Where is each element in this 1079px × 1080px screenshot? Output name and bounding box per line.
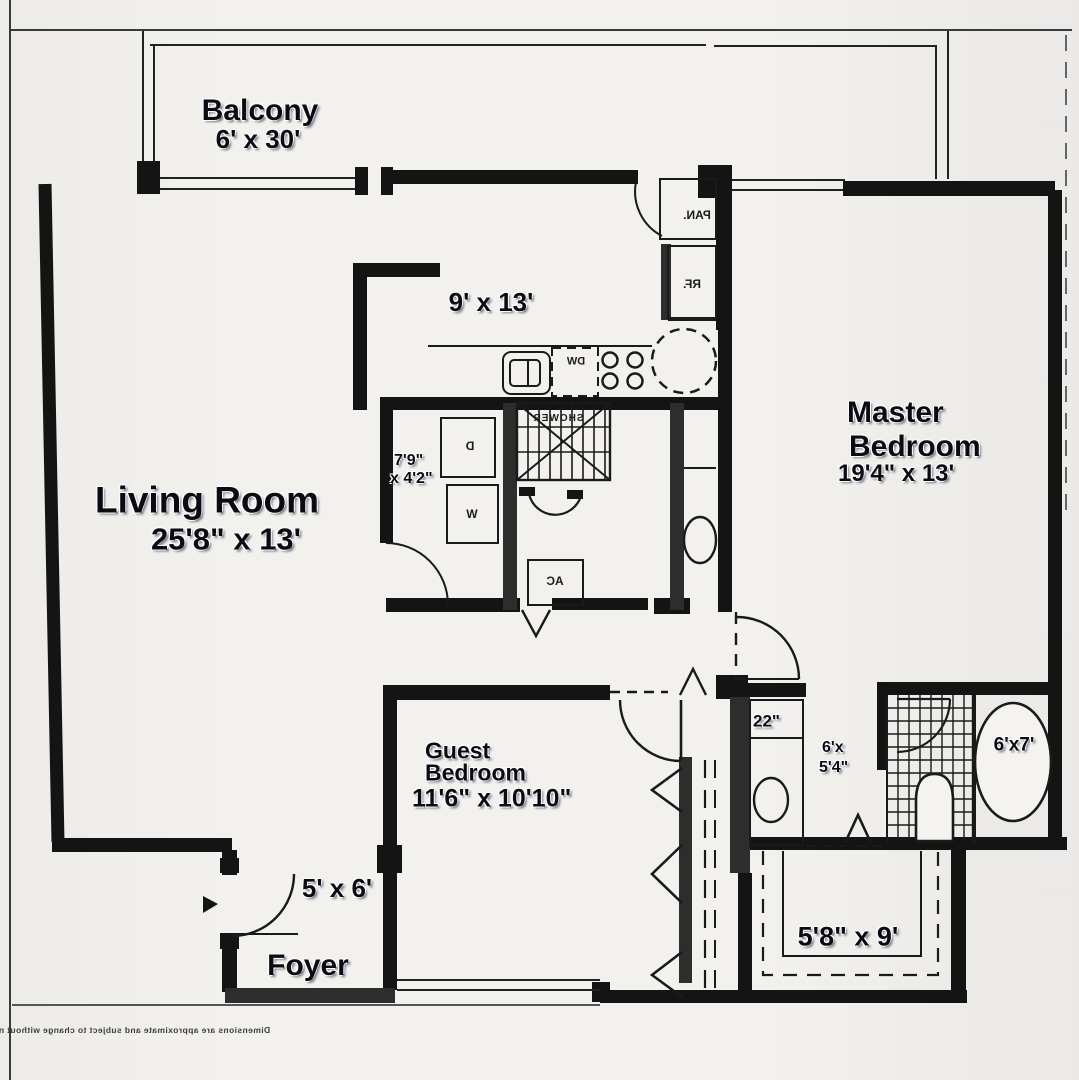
kitchen-dimensions: 9' x 13' [449,289,534,315]
toilet [916,774,953,841]
living-room-label: Living Room [95,482,319,519]
master-bedroom-label-line2: Bedroom [849,432,981,462]
entry-arrow-icon [203,896,218,913]
floorplan-page: Balcony 6' x 30' 9' x 13' Living Room 25… [0,0,1079,1080]
master-balcony-railing [714,31,948,179]
pantry-door-arc [635,182,662,236]
guest-window [397,980,600,990]
guest-door [610,669,706,761]
master-bedroom-label-line1: Master [847,398,944,428]
tub-room-dimensions: 6'x7' [994,736,1035,755]
bath-door [519,487,583,515]
shower-label: SHOWER [533,414,584,424]
guest-bedroom-label-line2: Bedroom [425,762,526,785]
tiled-shower [887,695,973,845]
refrigerator-label: RF. [683,278,701,290]
foyer-label: Foyer [267,951,349,981]
balcony-dimensions: 6' x 30' [216,126,301,152]
master-bedroom-dimensions: 19'4" x 13' [838,462,954,486]
bathtub [975,703,1051,821]
closet-sink [754,778,788,822]
master-door [736,612,799,680]
laundry-dimensions-line2: x 4'2" [390,471,433,487]
dryer-label: D [466,440,475,452]
tub-room [975,695,1051,845]
dining-table [652,329,716,393]
balcony-label: Balcony [202,96,319,126]
guest-bedroom-dimensions: 11'6" x 10'10" [412,787,571,812]
ac-label: AC [546,575,563,587]
foyer-dimensions: 5' x 6' [302,875,372,901]
dishwasher-label: DW [567,357,585,368]
walk-in-closet-dimensions: 5'8" x 9' [798,924,899,951]
balcony-door-jamb [355,167,368,195]
ac-door-mark [522,610,550,636]
walk-in-closet [763,851,938,975]
balcony-corner-post [137,161,160,194]
laundry-appliances [386,418,498,605]
stove-burners [603,353,643,389]
living-room-dimensions: 25'8" x 13' [151,524,301,555]
laundry-dimensions-line1: 7'9" [394,453,423,469]
kitchen-sink-basin [510,360,540,386]
wc [684,468,716,563]
entry-door [203,874,298,936]
pantry-label: PAN. [683,209,711,221]
living-west-wall [45,184,58,842]
toilet [684,517,716,563]
washer-label: W [466,508,477,520]
master-bath-dimensions-line2: 5'4" [819,760,848,776]
laundry-door-arc [386,543,448,605]
hall-closet-dimensions: 22" [753,713,780,730]
master-bath-dimensions-line1: 6'x [822,740,844,756]
hall-closet-door-mark [680,669,706,695]
disclaimer-text: Dimensions are approximate and subject t… [0,1025,270,1035]
